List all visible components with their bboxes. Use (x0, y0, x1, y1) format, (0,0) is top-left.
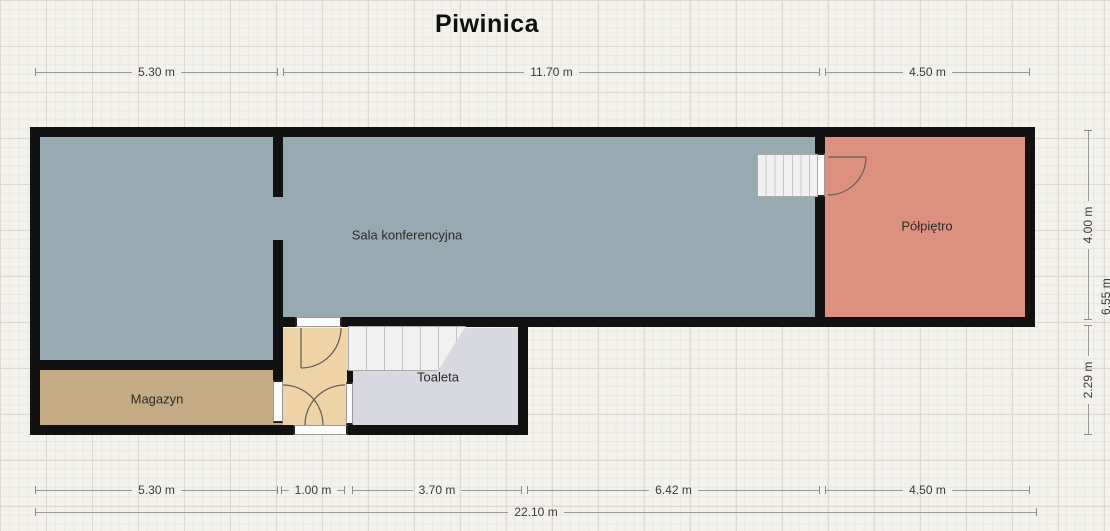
room-label-conference: Sala konferencyjna (352, 228, 463, 243)
room-label-toilet: Toaleta (417, 370, 459, 385)
dimension-top-1: 5.30 m (35, 64, 278, 80)
dimension-bottom-4: 6.42 m (527, 482, 820, 498)
dimension-right-clipped: 6.55 m (1098, 261, 1110, 321)
door-arc-vestibule-top (301, 328, 341, 368)
dimension-top-2: 11.70 m (283, 64, 820, 80)
floorplan-canvas: { "title": "Piwinica", "rooms": { "sala"… (0, 0, 1110, 531)
dimension-total-width: 22.10 m (35, 504, 1037, 520)
dimension-right-1: 4.00 m (1080, 130, 1096, 320)
dimension-top-3: 4.50 m (825, 64, 1030, 80)
door-arc-mezzanine (828, 157, 866, 195)
room-label-storage: Magazyn (131, 392, 184, 407)
dimension-bottom-1: 5.30 m (35, 482, 278, 498)
dimension-bottom-2: 1.00 m (281, 482, 345, 498)
dimension-right-2: 2.29 m (1080, 325, 1096, 435)
room-label-mezzanine: Półpiętro (901, 219, 952, 234)
door-arc-vestibule-bottom-left (283, 385, 323, 425)
dimension-bottom-5: 4.50 m (825, 482, 1030, 498)
dimension-bottom-3: 3.70 m (352, 482, 522, 498)
door-arc-vestibule-bottom-right (305, 385, 345, 425)
